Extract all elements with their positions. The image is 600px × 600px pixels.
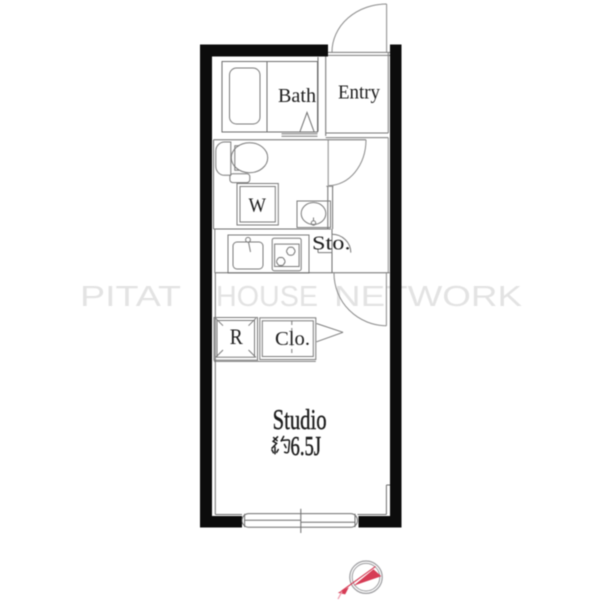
svg-text:PITAT: PITAT [80,281,181,313]
svg-text:NETWORK: NETWORK [334,281,523,313]
svg-text:Entry: Entry [338,82,381,104]
svg-text:HOUSE: HOUSE [216,281,318,313]
svg-text:Clo.: Clo. [275,328,310,350]
svg-text:W: W [249,195,267,217]
svg-text:Sto.: Sto. [312,233,351,255]
svg-text:R: R [230,324,243,349]
svg-text:Bath: Bath [278,85,316,107]
svg-text:6.5J: 6.5J [291,431,322,461]
